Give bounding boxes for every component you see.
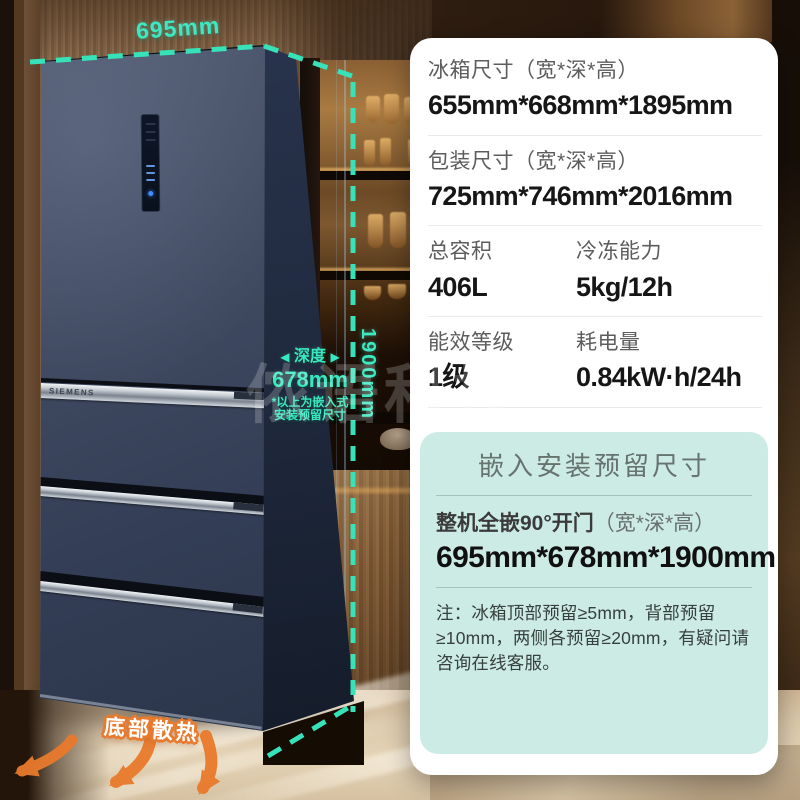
spec-label: 耗电量 bbox=[576, 330, 762, 356]
spec-label: 冰箱尺寸（宽*深*高） bbox=[428, 58, 762, 84]
spec-pair-cell: 总容积 406L bbox=[428, 239, 576, 303]
left-wall-edge bbox=[14, 0, 24, 714]
spec-card: 冰箱尺寸（宽*深*高） 655mm*668mm*1895mm 包装尺寸（宽*深*… bbox=[410, 38, 778, 775]
embed-card-title: 嵌入安装预留尺寸 bbox=[436, 446, 752, 483]
display-icon bbox=[146, 123, 156, 125]
spec-pair-cell: 能效等级 1级 bbox=[428, 330, 576, 394]
spec-value: 406L bbox=[428, 271, 576, 303]
left-wall-edge-dark bbox=[0, 0, 14, 800]
display-temp-segment bbox=[146, 179, 155, 181]
divider bbox=[428, 316, 762, 317]
depth-arrow-right-icon: ▶ bbox=[330, 350, 339, 364]
spec-label: 冷冻能力 bbox=[576, 239, 762, 265]
spec-value: 0.84kW·h/24h bbox=[576, 361, 762, 393]
spec-pair-cell: 冷冻能力 5kg/12h bbox=[576, 239, 762, 303]
display-temp-segment bbox=[146, 165, 155, 167]
left-wall-panel bbox=[24, 0, 40, 714]
warm-wood-top bbox=[600, 0, 790, 42]
spec-value: 725mm*746mm*2016mm bbox=[428, 180, 762, 212]
depth-note-line1: *以上为嵌入式 bbox=[254, 396, 366, 409]
display-icon bbox=[146, 131, 156, 133]
spec-label: 能效等级 bbox=[428, 330, 576, 356]
depth-note-line2: 安装预留尺寸 bbox=[254, 409, 366, 422]
embed-spec-label-light: （宽*深*高） bbox=[594, 512, 715, 535]
tumbler-glass bbox=[380, 138, 391, 166]
divider bbox=[428, 407, 762, 408]
tumbler-glass bbox=[364, 140, 375, 166]
embed-note: 注：冰箱顶部预留≥5mm，背部预留≥10mm，两侧各预留≥20mm，有疑问请咨询… bbox=[436, 601, 752, 676]
depth-title: 深度 bbox=[294, 348, 326, 365]
wine-glass bbox=[390, 212, 406, 248]
spec-value: 5kg/12h bbox=[576, 271, 762, 303]
divider bbox=[436, 587, 752, 588]
embed-spec-label: 整机全嵌90°开门（宽*深*高） bbox=[436, 507, 752, 537]
wine-glass bbox=[366, 96, 380, 122]
cup bbox=[388, 284, 406, 299]
floor-corner-shadow bbox=[0, 690, 110, 800]
embed-spec-label-strong: 整机全嵌90°开门 bbox=[436, 512, 594, 535]
wine-glass bbox=[384, 94, 399, 124]
product-spec-screenshot: SIEMENS bbox=[0, 0, 800, 800]
divider bbox=[436, 495, 752, 496]
spec-pair-cell: 耗电量 0.84kW·h/24h bbox=[576, 330, 762, 394]
wine-glass bbox=[368, 214, 383, 248]
spec-pair-row: 总容积 406L 冷冻能力 5kg/12h bbox=[428, 239, 762, 303]
spec-label: 总容积 bbox=[428, 239, 576, 265]
spec-label: 包装尺寸（宽*深*高） bbox=[428, 149, 762, 175]
spec-pair-row: 能效等级 1级 耗电量 0.84kW·h/24h bbox=[428, 330, 762, 394]
depth-arrow-left-icon: ◀ bbox=[280, 350, 289, 364]
siemens-logo: SIEMENS bbox=[49, 386, 95, 397]
spec-value: 1级 bbox=[428, 361, 576, 393]
depth-annotation: ◀ 深度 ▶ 678mm *以上为嵌入式 安装预留尺寸 bbox=[254, 348, 366, 422]
fridge-display-panel bbox=[141, 114, 161, 212]
spec-value: 655mm*668mm*1895mm bbox=[428, 89, 762, 121]
display-icon bbox=[146, 139, 156, 141]
divider bbox=[428, 225, 762, 226]
display-indicator-dot bbox=[148, 191, 153, 196]
embed-spec-value: 695mm*678mm*1900mm bbox=[436, 541, 752, 575]
embed-install-card: 嵌入安装预留尺寸 整机全嵌90°开门（宽*深*高） 695mm*678mm*19… bbox=[420, 432, 768, 754]
handle-cap bbox=[233, 502, 263, 511]
display-temp-segment bbox=[146, 172, 155, 174]
depth-value: 678mm bbox=[254, 368, 366, 392]
divider bbox=[428, 135, 762, 136]
